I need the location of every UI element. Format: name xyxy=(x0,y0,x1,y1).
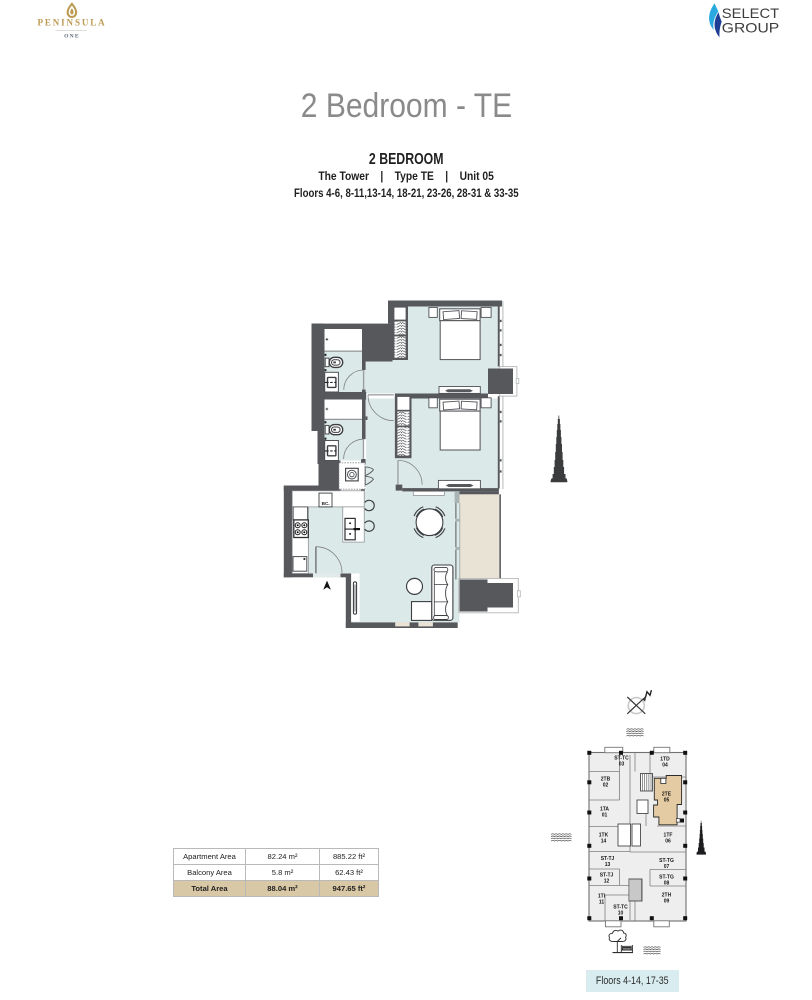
svg-text:11: 11 xyxy=(599,900,605,906)
svg-text:13: 13 xyxy=(605,862,611,868)
svg-text:05: 05 xyxy=(664,798,670,804)
svg-text:10: 10 xyxy=(618,911,624,917)
svg-text:03: 03 xyxy=(619,762,625,768)
svg-text:04: 04 xyxy=(662,763,668,769)
svg-text:09: 09 xyxy=(664,899,670,905)
svg-text:02: 02 xyxy=(603,783,609,789)
svg-text:14: 14 xyxy=(601,839,607,845)
svg-text:01: 01 xyxy=(602,813,608,819)
svg-text:08: 08 xyxy=(664,881,670,887)
svg-text:06: 06 xyxy=(665,839,671,845)
svg-text:12: 12 xyxy=(604,879,610,885)
svg-text:07: 07 xyxy=(664,864,670,870)
svg-text:BC.: BC. xyxy=(322,501,330,506)
